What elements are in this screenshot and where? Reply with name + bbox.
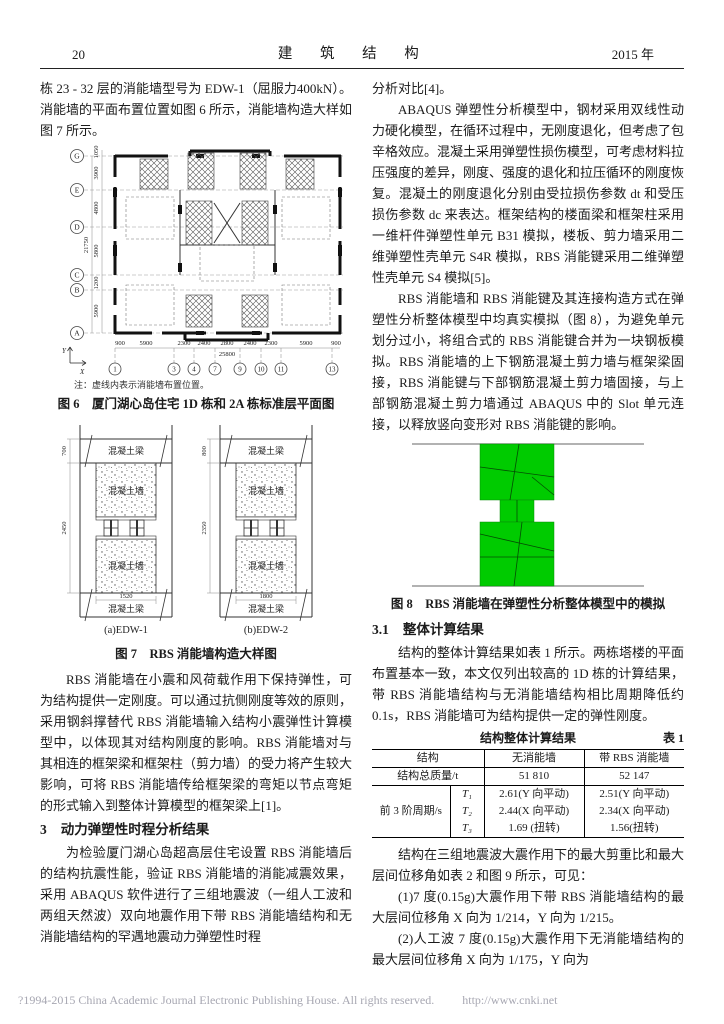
table-1-titlebar: 结构整体计算结果 表 1 [372, 730, 684, 747]
grid-label: E [75, 186, 80, 195]
dim-label: 700 [61, 446, 68, 456]
dim-label: 1800 [260, 593, 273, 600]
table-period-row: 前 3 阶周期/s T₁ 2.61(Y 向平动) 2.51(Y 向平动) [372, 786, 684, 804]
table-mass-row: 结构总质量/t 51 810 52 147 [372, 768, 684, 786]
mass-label: 结构总质量/t [372, 768, 484, 786]
dim-label: 4800 [93, 202, 100, 215]
section-3-1-number: 3.1 [372, 622, 389, 637]
t3-without: 1.69 (扭转) [484, 820, 584, 838]
footer-copyright: ?1994-2015 China Academic Journal Electr… [18, 993, 434, 1007]
paragraph-results: 结构的整体计算结果如表 1 所示。两栋塔楼的平面布置基本一致，本文仅列出较高的 … [372, 642, 684, 726]
wall-label: 混凝土墙 [108, 485, 144, 496]
grid-label: A [74, 329, 80, 338]
header-without: 无消能墙 [484, 750, 584, 768]
mode-t1: T₁ [450, 786, 484, 804]
t3-with: 1.56(扭转) [584, 820, 684, 838]
table-header-row: 结构 无消能墙 带 RBS 消能墙 [372, 750, 684, 768]
dim-label: 1050 [93, 146, 100, 159]
grid-label: 1 [113, 366, 117, 374]
figure-8-caption: 图 8 RBS 消能墙在弹塑性分析整体模型中的模拟 [372, 595, 684, 613]
paragraph-section-3: 为检验厦门湖心岛超高层住宅设置 RBS 消能墙后的结构抗震性能，验证 RBS 消… [40, 842, 352, 947]
row-grid-bubbles [71, 150, 84, 340]
paragraph-intro: 栋 23 - 32 层的消能墙型号为 EDW-1（屈服力400kN）。消能墙的平… [40, 78, 352, 141]
footer-url: http://www.cnki.net [462, 993, 557, 1007]
t2-with: 2.34(X 向平动) [584, 803, 684, 820]
dim-label: 2800 [221, 340, 234, 347]
grid-label: 7 [213, 366, 217, 374]
t1-without: 2.61(Y 向平动) [484, 786, 584, 804]
paragraph-item-2: (2)人工波 7 度(0.15g)大震作用下无消能墙结构的最大层间位移角 X 向… [372, 928, 684, 970]
dim-label: 2300 [178, 340, 191, 347]
grid-label: 9 [238, 366, 242, 374]
table-1-label: 表 1 [644, 730, 684, 747]
grid-label: D [74, 223, 80, 232]
beam-label: 混凝土梁 [248, 445, 284, 456]
dim-total-height: 21750 [83, 237, 90, 253]
figure-6-floor-plan: G E D C B A 1050 3900 4800 5800 1200 590… [40, 145, 352, 379]
t1-with: 2.51(Y 向平动) [584, 786, 684, 804]
grid-label: 3 [172, 366, 176, 374]
table-1: 结构整体计算结果 表 1 结构 无消能墙 带 RBS 消能墙 结构总质量/t 5… [372, 730, 684, 838]
dim-label: 2400 [244, 340, 257, 347]
grid-label: C [74, 271, 79, 280]
detail-b-label: (b)EDW-2 [244, 625, 288, 636]
figure-8-fem-model [372, 439, 684, 591]
header-structure: 结构 [372, 750, 484, 768]
section-3-1-heading: 3.1整体计算结果 [372, 619, 684, 640]
table-1-title: 结构整体计算结果 [372, 730, 644, 747]
grid-label: B [74, 286, 79, 295]
page-header: 20 建 筑 结 构 2015 年 [40, 42, 684, 69]
dim-label: 900 [331, 340, 341, 347]
left-column: 栋 23 - 32 层的消能墙型号为 EDW-1（屈服力400kN）。消能墙的平… [40, 72, 352, 947]
grid-label: G [74, 152, 80, 161]
beam-label: 混凝土梁 [108, 445, 144, 456]
figure-7-wall-details: 700 2450 1520 混凝土梁 混凝土墙 混凝土墙 混凝土梁 (a)EDW… [40, 419, 352, 641]
damper-wall-zones [140, 153, 314, 327]
dim-label: 1200 [93, 277, 100, 290]
dim-label: 5900 [93, 305, 100, 318]
paragraph-model: RBS 消能墙和 RBS 消能键及其连接构造方式在弹塑性分析整体模型中均真实模拟… [372, 288, 684, 435]
wall-label: 混凝土墙 [108, 560, 144, 571]
beam-label: 混凝土梁 [248, 603, 284, 614]
axis-x-label: X [79, 368, 85, 376]
paragraph-waves: 结构在三组地震波大震作用下的最大剪重比和最大层间位移角如表 2 和图 9 所示，… [372, 844, 684, 886]
journal-title: 建 筑 结 构 [266, 42, 431, 63]
issue-year: 2015 年 [612, 44, 654, 63]
figure-8: 图 8 RBS 消能墙在弹塑性分析整体模型中的模拟 [372, 439, 684, 613]
figure-6: G E D C B A 1050 3900 4800 5800 1200 590… [40, 145, 352, 413]
figure-6-note: 注：虚线内表示消能墙布置位置。 [74, 380, 352, 391]
dim-label: 5900 [300, 340, 313, 347]
right-column: 分析对比[4]。 ABAQUS 弹塑性分析模型中，钢材采用双线性动力硬化模型，在… [372, 72, 684, 970]
grid-label: 11 [278, 366, 285, 374]
page-number: 20 [72, 47, 85, 63]
figure-7: 700 2450 1520 混凝土梁 混凝土墙 混凝土墙 混凝土梁 (a)EDW… [40, 419, 352, 663]
figure-6-caption: 图 6 厦门湖心岛住宅 1D 栋和 2A 栋标准层平面图 [40, 395, 352, 413]
dim-total-width: 25800 [219, 351, 235, 358]
mass-without: 51 810 [484, 768, 584, 786]
paragraph-item-1: (1)7 度(0.15g)大震作用下带 RBS 消能墙结构的最大层间位移角 X … [372, 886, 684, 928]
mode-t3: T₃ [450, 820, 484, 838]
detail-a-label: (a)EDW-1 [104, 625, 148, 636]
dim-label: 800 [201, 446, 208, 456]
section-3-number: 3 [40, 822, 47, 837]
footer: ?1994-2015 China Academic Journal Electr… [18, 993, 718, 1008]
dim-label: 2300 [265, 340, 278, 347]
paragraph-abaqus: ABAQUS 弹塑性分析模型中，钢材采用双线性动力硬化模型，在循环过程中，无刚度… [372, 99, 684, 288]
dim-label: 3900 [93, 167, 100, 180]
dim-label: 900 [115, 340, 125, 347]
section-3-title: 动力弹塑性时程分析结果 [61, 822, 210, 837]
header-with: 带 RBS 消能墙 [584, 750, 684, 768]
grid-label: 13 [329, 366, 337, 374]
section-3-1-title: 整体计算结果 [403, 622, 484, 637]
figure-7-caption: 图 7 RBS 消能墙构造大样图 [40, 645, 352, 663]
dim-label: 2350 [201, 522, 208, 535]
grid-label: 10 [258, 366, 266, 374]
mode-t2: T₂ [450, 803, 484, 820]
results-table: 结构 无消能墙 带 RBS 消能墙 结构总质量/t 51 810 52 147 … [372, 749, 684, 838]
axis-y-label: Y [62, 347, 67, 355]
section-3-heading: 3动力弹塑性时程分析结果 [40, 819, 352, 840]
dim-label: 5800 [93, 245, 100, 258]
period-group-label: 前 3 阶周期/s [372, 786, 450, 838]
dim-label: 1520 [120, 593, 133, 600]
dim-label: 2450 [61, 522, 68, 535]
t2-without: 2.44(X 向平动) [484, 803, 584, 820]
mass-with: 52 147 [584, 768, 684, 786]
dim-label: 5900 [140, 340, 153, 347]
wall-label: 混凝土墙 [248, 485, 284, 496]
wall-label: 混凝土墙 [248, 560, 284, 571]
grid-label: 4 [192, 366, 196, 374]
dim-label: 2400 [198, 340, 211, 347]
paragraph-rbs-wall: RBS 消能墙在小震和风荷载作用下保持弹性，可为结构提供一定刚度。可以通过抗侧刚… [40, 669, 352, 816]
paragraph-continuation: 分析对比[4]。 [372, 78, 684, 99]
beam-label: 混凝土梁 [108, 603, 144, 614]
